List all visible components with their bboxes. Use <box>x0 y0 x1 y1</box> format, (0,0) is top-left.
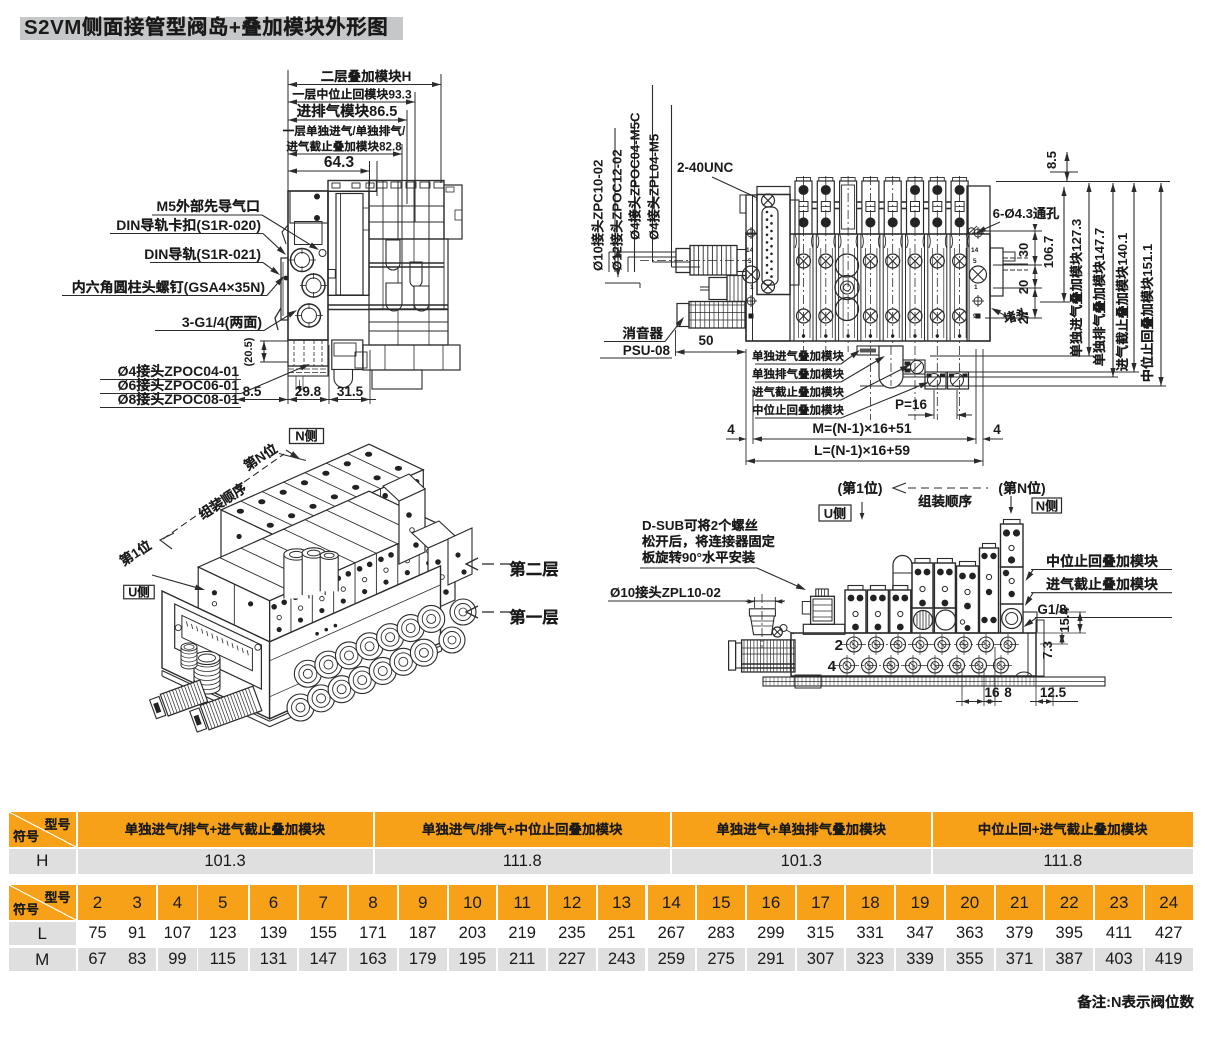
svg-text:单独进气叠加模块: 单独进气叠加模块 <box>752 350 844 363</box>
svg-text:50: 50 <box>698 333 713 348</box>
svg-text:消音器: 消音器 <box>623 326 664 341</box>
svg-text:进气截止叠加模块: 进气截止叠加模块 <box>752 386 844 399</box>
svg-text:D-SUB可将2个螺丝: D-SUB可将2个螺丝 <box>642 518 758 533</box>
svg-text:(第1位): (第1位) <box>837 480 882 496</box>
svg-text:第1位: 第1位 <box>117 537 155 569</box>
svg-text:30: 30 <box>1016 243 1031 257</box>
svg-text:P=16: P=16 <box>895 397 927 412</box>
svg-text:5: 5 <box>973 258 977 265</box>
svg-text:DIN导轨卡扣(S1R-020): DIN导轨卡扣(S1R-020) <box>116 217 261 233</box>
svg-text:二层叠加模块H: 二层叠加模块H <box>321 69 412 84</box>
svg-text:2: 2 <box>835 637 843 654</box>
svg-text:31.5: 31.5 <box>337 384 364 399</box>
svg-text:(第N位): (第N位) <box>998 480 1045 496</box>
svg-text:Ø10接头ZPC10-02: Ø10接头ZPC10-02 <box>591 160 606 271</box>
svg-text:16: 16 <box>984 685 1000 700</box>
svg-text:板旋转90°水平安装: 板旋转90°水平安装 <box>642 550 756 565</box>
svg-text:N侧: N侧 <box>295 429 317 444</box>
svg-text:1: 1 <box>750 284 754 291</box>
svg-text:5: 5 <box>748 258 752 265</box>
svg-text:松开后，将连接器固定: 松开后，将连接器固定 <box>642 534 776 549</box>
svg-text:Ø10接头ZPL10-02: Ø10接头ZPL10-02 <box>610 585 721 600</box>
svg-text:M5外部先导气口: M5外部先导气口 <box>157 198 260 214</box>
svg-text:4: 4 <box>727 422 735 437</box>
svg-text:进气截止叠加模块140.1: 进气截止叠加模块140.1 <box>1115 233 1130 372</box>
svg-text:8: 8 <box>1004 685 1012 700</box>
svg-text:(20.5): (20.5) <box>243 337 255 366</box>
svg-text:Ø4接头ZPL04-M5: Ø4接头ZPL04-M5 <box>647 134 662 240</box>
svg-text:一层单独进气/单独排气/: 一层单独进气/单独排气/ <box>283 124 406 138</box>
svg-text:106.7: 106.7 <box>1041 236 1056 269</box>
svg-text:进气截止叠加模块82.8: 进气截止叠加模块82.8 <box>286 140 402 154</box>
svg-text:中位止回叠加模块: 中位止回叠加模块 <box>1046 553 1159 569</box>
svg-text:27: 27 <box>1016 310 1031 324</box>
svg-text:N侧: N侧 <box>1036 499 1058 514</box>
svg-text:第N位: 第N位 <box>241 441 280 474</box>
svg-text:单独排气叠加模块147.7: 单独排气叠加模块147.7 <box>1092 228 1107 367</box>
svg-text:L=(N-1)×16+59: L=(N-1)×16+59 <box>814 442 910 458</box>
svg-text:9: 9 <box>749 313 753 320</box>
svg-text:第二层: 第二层 <box>509 560 559 579</box>
svg-text:M=(N-1)×16+51: M=(N-1)×16+51 <box>812 420 911 436</box>
svg-text:中位止回叠加模块: 中位止回叠加模块 <box>752 403 844 417</box>
svg-text:PSU-08: PSU-08 <box>623 343 671 358</box>
svg-text:内六角圆柱头螺钉(GSA4×35N): 内六角圆柱头螺钉(GSA4×35N) <box>72 279 265 295</box>
svg-text:8.5: 8.5 <box>1044 151 1059 169</box>
svg-text:U侧: U侧 <box>824 506 846 521</box>
svg-text:14: 14 <box>746 247 754 254</box>
svg-text:9: 9 <box>973 313 977 320</box>
svg-text:中位止回叠加模块151.1: 中位止回叠加模块151.1 <box>1140 244 1155 383</box>
svg-text:进气截止叠加模块: 进气截止叠加模块 <box>1046 576 1159 592</box>
svg-text:3-G1/4(两面): 3-G1/4(两面) <box>182 314 262 330</box>
svg-text:4: 4 <box>993 422 1001 437</box>
svg-text:第一层: 第一层 <box>509 608 559 627</box>
svg-text:Ø8接头ZPOC08-01: Ø8接头ZPOC08-01 <box>118 391 240 407</box>
svg-text:单独进气叠加模块127.3: 单独进气叠加模块127.3 <box>1069 219 1084 358</box>
svg-text:1: 1 <box>974 284 978 291</box>
svg-text:组装顺序: 组装顺序 <box>918 494 972 509</box>
svg-text:DIN导轨(S1R-021): DIN导轨(S1R-021) <box>144 246 261 262</box>
svg-text:15.4: 15.4 <box>1057 607 1072 633</box>
svg-text:20: 20 <box>1016 280 1031 294</box>
svg-text:6-Ø4.3通孔: 6-Ø4.3通孔 <box>993 206 1061 221</box>
svg-text:4: 4 <box>828 658 837 675</box>
svg-text:2-40UNC: 2-40UNC <box>677 160 734 175</box>
svg-text:U侧: U侧 <box>128 585 150 599</box>
svg-text:64.3: 64.3 <box>324 154 355 171</box>
svg-text:29.8: 29.8 <box>295 384 322 399</box>
svg-text:一层中位止回模块93.3: 一层中位止回模块93.3 <box>292 88 412 102</box>
svg-text:14: 14 <box>971 247 979 254</box>
svg-text:进排气模块86.5: 进排气模块86.5 <box>297 103 398 120</box>
svg-text:Ø4接头ZPOC04-M5C: Ø4接头ZPOC04-M5C <box>628 112 643 240</box>
svg-text:单独排气叠加模块: 单独排气叠加模块 <box>752 368 844 381</box>
